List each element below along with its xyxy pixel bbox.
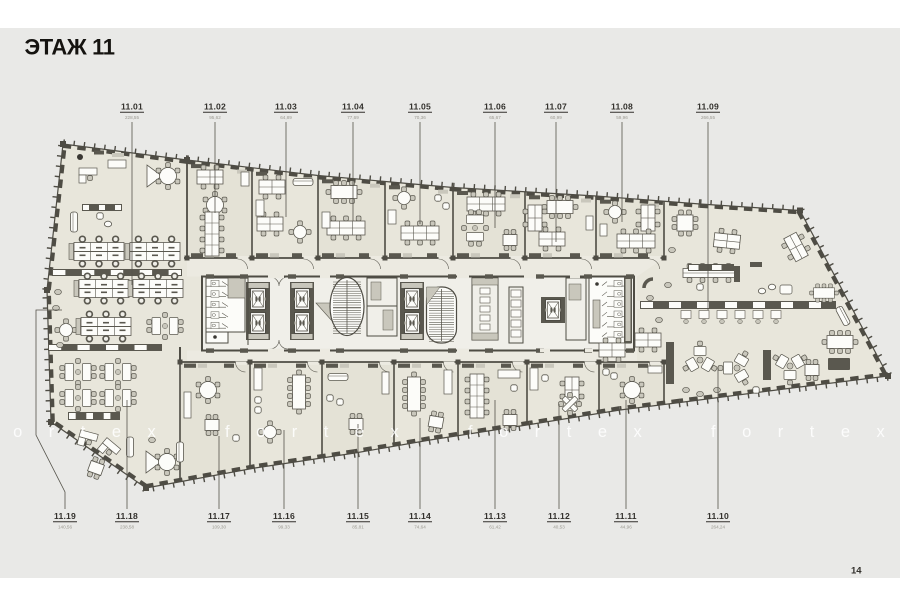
svg-text:264,24: 264,24 [711, 525, 725, 530]
svg-text:11.07: 11.07 [545, 102, 567, 112]
svg-text:11.05: 11.05 [409, 102, 431, 112]
svg-text:11.15: 11.15 [347, 511, 369, 521]
svg-text:fortex: fortex [711, 423, 900, 441]
svg-text:fortex: fortex [468, 423, 668, 441]
svg-text:11.16: 11.16 [273, 511, 295, 521]
svg-text:61,42: 61,42 [489, 525, 501, 530]
svg-text:11.19: 11.19 [54, 511, 76, 521]
svg-text:11.11: 11.11 [615, 511, 637, 521]
svg-text:266,55: 266,55 [701, 115, 715, 120]
svg-text:11.18: 11.18 [116, 511, 138, 521]
svg-text:228,55: 228,55 [125, 115, 139, 120]
svg-text:74,64: 74,64 [414, 525, 426, 530]
svg-text:11.17: 11.17 [208, 511, 230, 521]
svg-text:11.10: 11.10 [707, 511, 729, 521]
svg-text:99,33: 99,33 [278, 525, 290, 530]
svg-text:65,67: 65,67 [489, 115, 501, 120]
svg-text:109,30: 109,30 [212, 525, 226, 530]
svg-text:95,62: 95,62 [209, 115, 221, 120]
svg-text:ЭТАЖ 11: ЭТАЖ 11 [25, 35, 115, 60]
svg-text:238,58: 238,58 [120, 525, 134, 530]
svg-text:40,53: 40,53 [553, 525, 565, 530]
svg-text:44,96: 44,96 [620, 525, 632, 530]
svg-text:85,81: 85,81 [352, 525, 364, 530]
svg-text:11.09: 11.09 [697, 102, 719, 112]
svg-text:77,69: 77,69 [347, 115, 359, 120]
svg-text:11.13: 11.13 [484, 511, 506, 521]
svg-text:fortex: fortex [225, 423, 425, 441]
svg-text:11.12: 11.12 [548, 511, 570, 521]
svg-text:11.04: 11.04 [342, 102, 364, 112]
svg-text:70,36: 70,36 [414, 115, 426, 120]
svg-text:14: 14 [851, 566, 862, 577]
svg-text:60,99: 60,99 [550, 115, 562, 120]
svg-text:fortex: fortex [0, 423, 182, 441]
svg-text:11.08: 11.08 [611, 102, 633, 112]
svg-text:11.06: 11.06 [484, 102, 506, 112]
svg-text:140,56: 140,56 [58, 525, 72, 530]
svg-text:11.02: 11.02 [204, 102, 226, 112]
svg-text:64,89: 64,89 [280, 115, 292, 120]
svg-text:11.01: 11.01 [121, 102, 143, 112]
svg-text:11.14: 11.14 [409, 511, 431, 521]
svg-text:11.03: 11.03 [275, 102, 297, 112]
svg-text:59,96: 59,96 [616, 115, 628, 120]
